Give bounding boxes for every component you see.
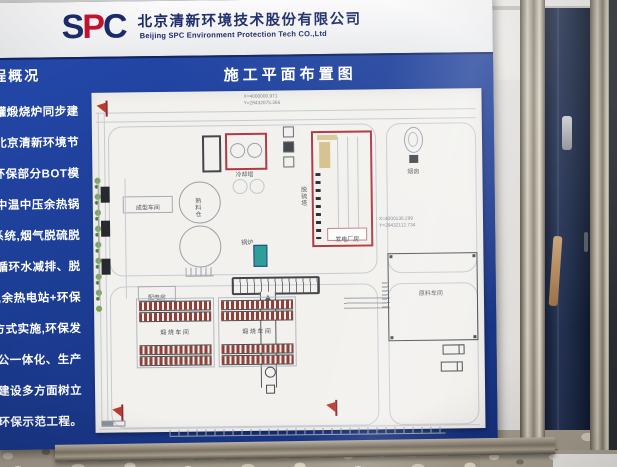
- logo-letter-p: P: [82, 8, 103, 46]
- company-name-en: Beijing SPC Environment Protection Tech …: [140, 29, 327, 40]
- structure-block: [101, 187, 110, 203]
- overview-line: 投运,余热电站+环保: [0, 289, 81, 306]
- banner-main-title: 施工平面布置图: [190, 62, 390, 85]
- kiln-row: [222, 354, 294, 365]
- sign-frame-post-inner: [520, 0, 545, 455]
- calcining-workshop-label: 煅烧车间: [147, 328, 204, 337]
- kiln-row: [140, 355, 212, 366]
- equipment-box-icon: [283, 126, 294, 137]
- tan-block: [319, 142, 330, 168]
- kiln-row: [139, 300, 211, 311]
- sign-frame-post-outer: [590, 0, 611, 455]
- overview-line: 64罐煅烧炉同步建: [0, 103, 79, 120]
- tower-circle-icon: [230, 143, 245, 158]
- dark-building: [202, 135, 221, 172]
- photo-right-edge-strip: [609, 0, 617, 467]
- conveyor-ticks: [382, 282, 388, 308]
- site-plan-panel: X=4000000.971 Y=29432075.366 冷却塔 脱硫塔 锅炉: [91, 88, 485, 433]
- door-handle: [562, 116, 572, 150]
- equipment-box-icon: [283, 141, 294, 152]
- chimney-outline: [404, 127, 423, 153]
- raw-material-building: 原料车间: [387, 252, 478, 341]
- clinker-silo-label: 熟料仓: [194, 198, 202, 218]
- banner-left-title: 程概况: [0, 65, 40, 86]
- red-flag-icon: [121, 404, 123, 420]
- road-top: [96, 108, 476, 123]
- door-strap: [549, 236, 563, 306]
- calcining-hall-left: 煅烧车间: [136, 297, 215, 368]
- overview-line: 吨中温中压余热锅: [0, 196, 80, 213]
- kiln-row: [139, 311, 211, 322]
- west-structures: [97, 178, 126, 298]
- road-block-b: [386, 122, 478, 273]
- kiln-row: [221, 299, 293, 310]
- sign-header: SPC 北京清新环境技术股份有限公司 Beijing SPC Environme…: [0, 0, 493, 58]
- boiler-block: [253, 245, 267, 267]
- raw-material-label: 原料车间: [419, 289, 443, 298]
- structure-block: [101, 221, 110, 237]
- boiler-label: 锅炉: [241, 238, 253, 246]
- overview-line: 电+环保示范工程。: [0, 413, 83, 430]
- scale-bar: [101, 420, 125, 426]
- survey-coords-top: X=4000000.971 Y=29432075.366: [243, 93, 280, 107]
- chimney-inner: [408, 132, 418, 147]
- calcining-workshop-label: 煅烧车间: [229, 327, 286, 336]
- tower-circle-icon: [232, 179, 247, 194]
- survey-coords-right: X=4000136.299 Y=29432112.734: [379, 215, 416, 229]
- red-flag-icon: [106, 101, 108, 117]
- truck-icon: [443, 344, 465, 354]
- overview-line: 步建设循环水减排、脱: [0, 258, 81, 275]
- door-lever: [584, 232, 588, 252]
- forming-workshop-label: 成型车间: [136, 203, 160, 212]
- equipment-row-ticks: [315, 173, 321, 239]
- corner-dot: [472, 254, 475, 257]
- spc-logo: SPC: [61, 7, 125, 47]
- cooling-tower-outline: [229, 177, 267, 201]
- construction-sign-photo: SPC 北京清新环境技术股份有限公司 Beijing SPC Environme…: [0, 0, 617, 467]
- equipment-box-icon: [283, 156, 294, 167]
- logo-letter-s: S: [61, 8, 82, 46]
- truck-icon: [441, 361, 463, 371]
- mini-circle: [265, 367, 276, 378]
- kiln-row: [222, 343, 294, 354]
- calcining-hall-right: 煅烧车间: [218, 296, 297, 367]
- overview-line: 设的方式实施,环保发: [0, 320, 81, 337]
- corner-dot: [390, 336, 393, 339]
- overview-line: 程、工程建设多方面树立: [0, 382, 82, 400]
- cooling-tower-highlight: [225, 133, 267, 171]
- grid-line: [337, 137, 339, 239]
- grid-line: [357, 137, 359, 239]
- coord-y: Y=29432112.734: [379, 222, 415, 229]
- coord-y: Y=29432075.366: [244, 99, 281, 106]
- kiln-row: [221, 310, 293, 321]
- tower-circle-icon: [247, 143, 262, 158]
- overview-line: C+环保部分BOT模: [0, 165, 79, 182]
- chimney-marker: [409, 155, 418, 163]
- power-house-chip: 发电厂房: [327, 227, 367, 240]
- red-flag-icon: [335, 400, 337, 416]
- logo-letter-c: C: [103, 7, 126, 45]
- sign-body: 程概况 施工平面布置图 64罐煅烧炉同步建 由北京清新环境节 C+环保部分BOT…: [0, 52, 498, 450]
- power-house-label: 发电厂房: [335, 235, 359, 244]
- sign-board: SPC 北京清新环境技术股份有限公司 Beijing SPC Environme…: [0, 0, 498, 450]
- blue-container-door: [543, 8, 592, 444]
- tan-block: [317, 135, 337, 140]
- overview-line: 由北京清新环境节: [0, 134, 79, 151]
- overview-line: 生产办公一体化、生产: [0, 351, 82, 368]
- overview-line: 保系统,烟气脱硫脱: [0, 227, 80, 244]
- kiln-row: [140, 344, 212, 355]
- desulfurization-tower-label: 脱硫塔: [300, 186, 308, 206]
- tower-circle-icon: [249, 179, 264, 194]
- grid-line: [347, 137, 349, 239]
- corner-dot: [389, 255, 392, 258]
- company-name-cn: 北京清新环境技术股份有限公司: [137, 8, 361, 32]
- chimney-label: 烟囱: [402, 167, 425, 176]
- forming-workshop-box: 成型车间: [123, 196, 173, 214]
- structure-block: [101, 259, 110, 275]
- floor-patch: [553, 454, 617, 467]
- equipment-symbols: [283, 126, 294, 171]
- mini-square: [266, 385, 275, 394]
- power-house-highlight: 发电厂房: [311, 130, 373, 247]
- corner-dot: [473, 335, 476, 338]
- silo-hoppers: [186, 267, 214, 276]
- door-crease: [557, 8, 559, 444]
